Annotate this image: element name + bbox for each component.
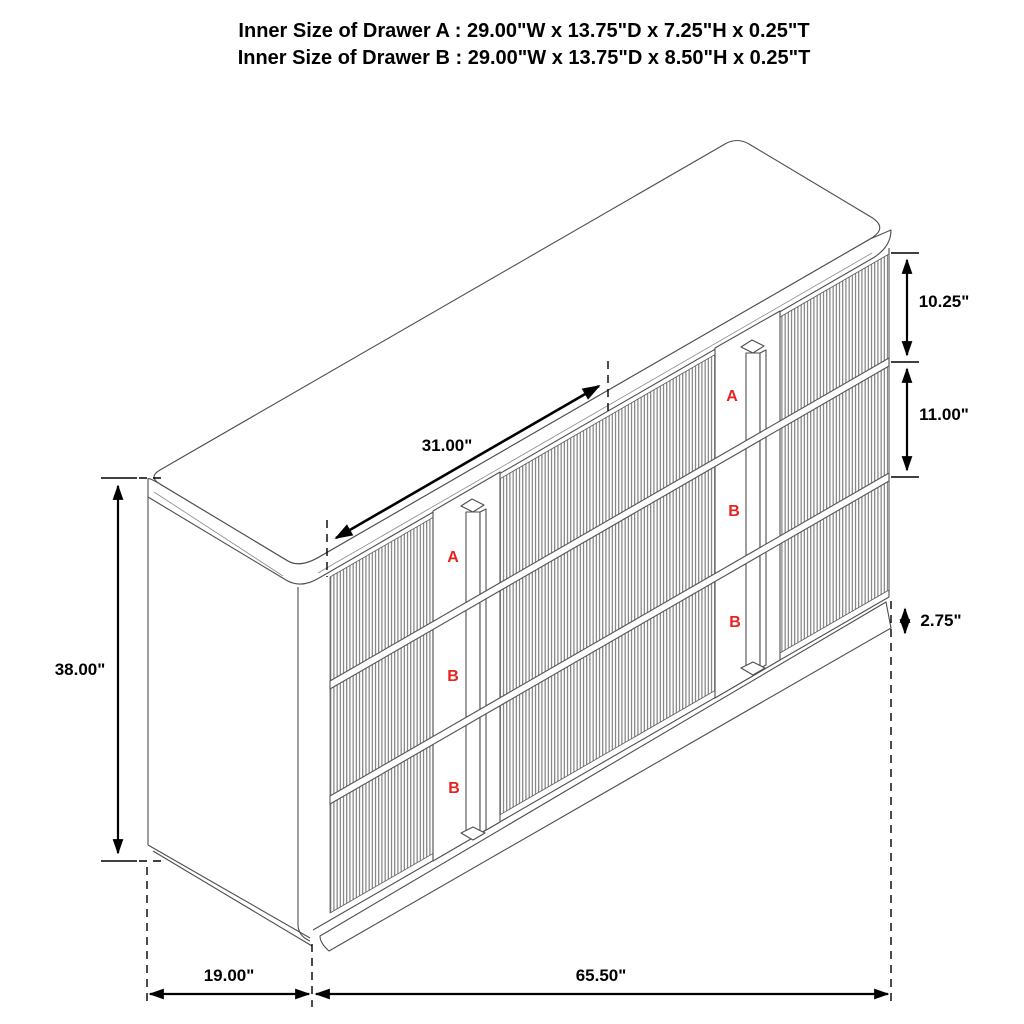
dim-label-drawer-a-height: 10.25" [919, 292, 970, 312]
title-block: Inner Size of Drawer A : 29.00"W x 13.75… [238, 18, 811, 72]
drawer-letter-left-a: A [447, 549, 459, 567]
title-drawer-a-size: Inner Size of Drawer A : 29.00"W x 13.75… [238, 18, 811, 45]
title-drawer-b-size: Inner Size of Drawer B : 29.00"W x 13.75… [238, 45, 811, 72]
drawer-letter-left-b2: B [448, 780, 460, 798]
dim-label-width: 65.50" [576, 966, 627, 986]
cabinet-body [148, 141, 891, 953]
dim-label-depth: 19.00" [204, 966, 255, 986]
dresser-dimension-diagram: Inner Size of Drawer A : 29.00"W x 13.75… [0, 0, 1024, 1024]
dim-label-base-height: 2.75" [920, 611, 961, 631]
drawer-letter-right-a: A [726, 388, 738, 406]
drawer-letter-left-b1: B [447, 668, 459, 686]
dim-label-drawer-front-width: 31.00" [422, 436, 473, 456]
sideboard-line-art [0, 0, 1024, 1024]
dim-label-drawer-b-height: 11.00" [919, 405, 969, 425]
drawer-letter-right-b2: B [729, 614, 741, 632]
drawer-letter-right-b1: B [728, 503, 740, 521]
dim-label-overall-height: 38.00" [55, 660, 106, 680]
